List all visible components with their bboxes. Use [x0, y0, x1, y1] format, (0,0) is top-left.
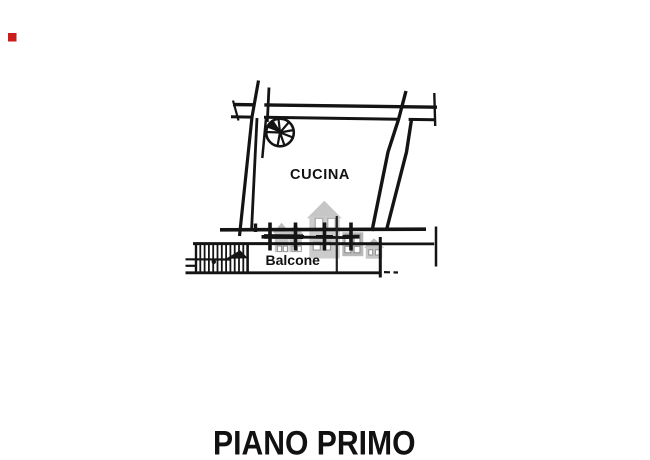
svg-text:Balcone: Balcone: [266, 252, 321, 268]
svg-text:CUCINA: CUCINA: [290, 167, 350, 183]
svg-text:PIANO PRIMO: PIANO PRIMO: [213, 425, 416, 460]
